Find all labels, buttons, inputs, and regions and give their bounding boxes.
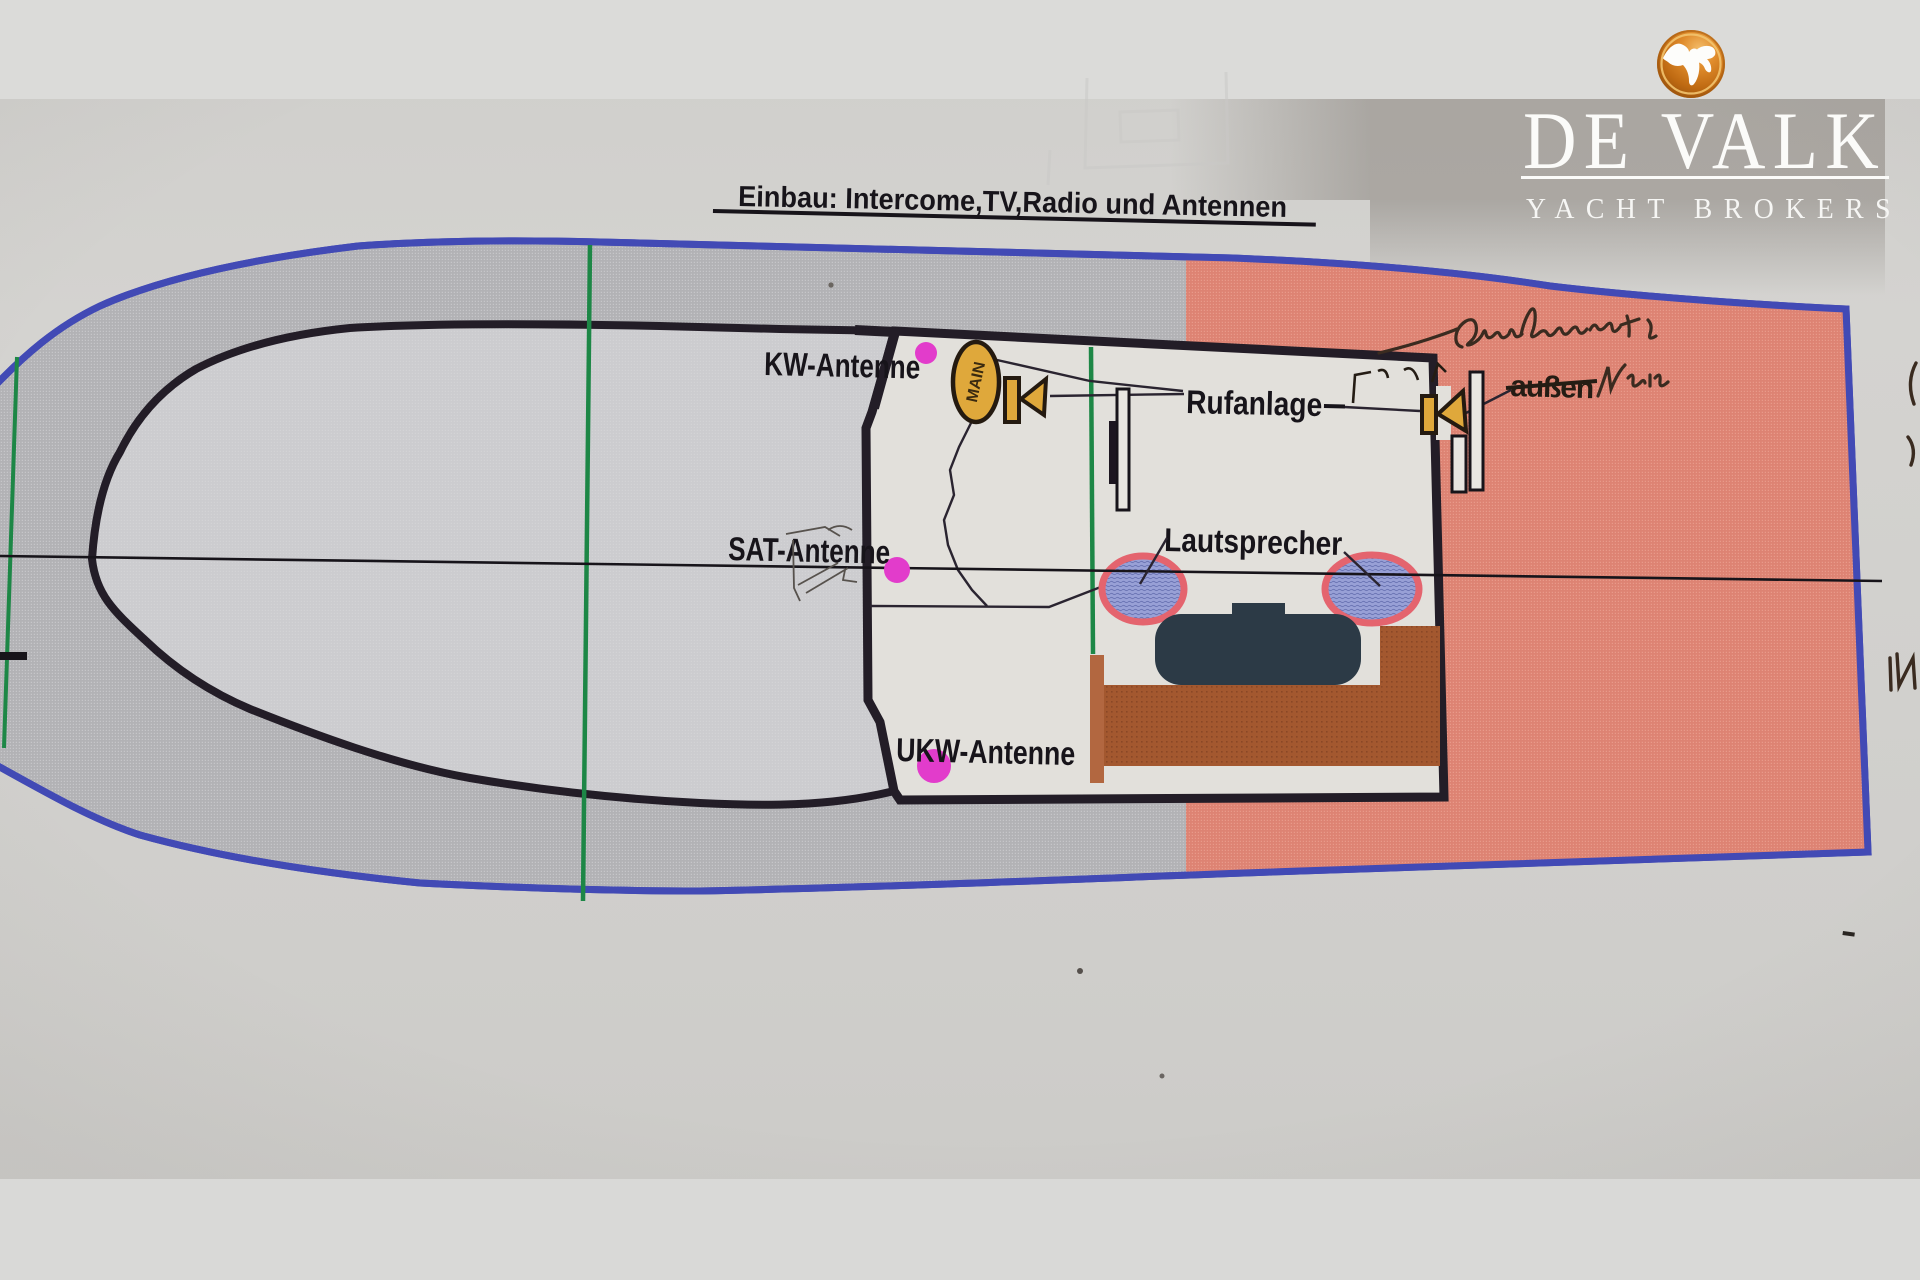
svg-text:YACHT BROKERS: YACHT BROKERS — [1526, 193, 1902, 225]
svg-text:DE VALK: DE VALK — [1523, 95, 1886, 186]
